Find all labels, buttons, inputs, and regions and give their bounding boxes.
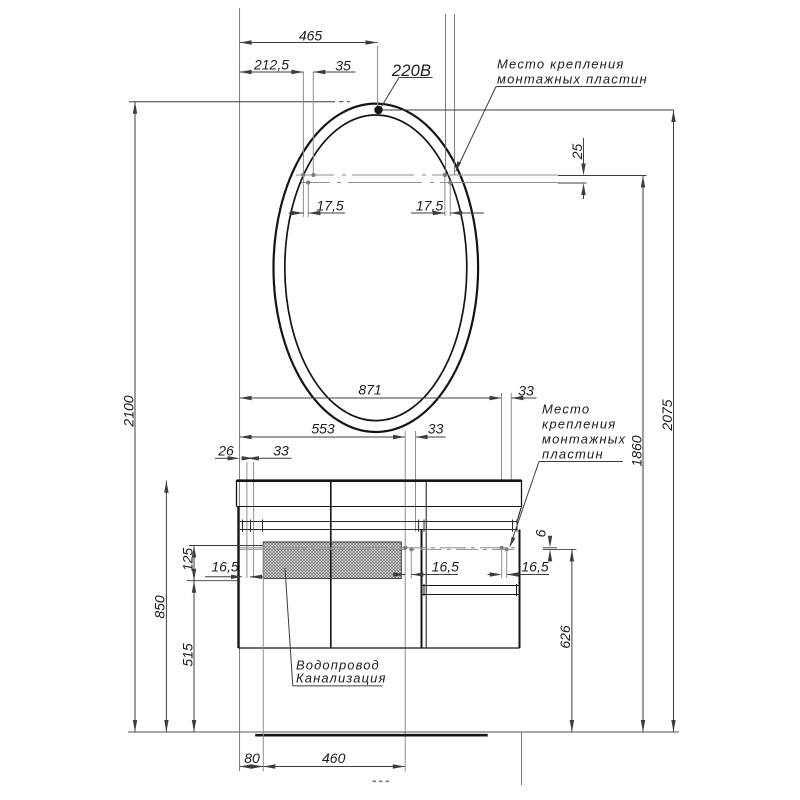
svg-text:626: 626	[557, 625, 573, 649]
svg-text:17,5: 17,5	[416, 197, 443, 213]
svg-text:33: 33	[273, 443, 289, 459]
svg-text:16,5: 16,5	[432, 559, 459, 575]
svg-text:16,5: 16,5	[521, 558, 548, 574]
svg-text:553: 553	[311, 420, 335, 436]
svg-text:35: 35	[335, 57, 351, 73]
svg-text:монтажных: монтажных	[542, 432, 626, 447]
svg-text:6: 6	[533, 529, 549, 537]
svg-text:Канализация: Канализация	[296, 670, 387, 685]
svg-text:460: 460	[322, 750, 346, 766]
svg-text:17,5: 17,5	[316, 197, 343, 213]
svg-text:33: 33	[428, 420, 444, 436]
svg-text:1860: 1860	[628, 435, 644, 466]
svg-text:25: 25	[569, 144, 585, 161]
svg-text:33: 33	[518, 382, 534, 398]
svg-text:16,5: 16,5	[211, 558, 238, 574]
svg-text:2075: 2075	[659, 399, 675, 431]
svg-text:Место крепления: Место крепления	[497, 57, 625, 72]
svg-text:Место: Место	[542, 402, 590, 417]
svg-text:212,5: 212,5	[253, 57, 289, 73]
svg-text:крепления: крепления	[542, 417, 616, 432]
svg-text:871: 871	[358, 381, 381, 397]
svg-text:80: 80	[244, 750, 260, 766]
svg-text:26: 26	[217, 443, 234, 459]
svg-text:515: 515	[179, 643, 195, 667]
svg-text:850: 850	[152, 595, 168, 619]
svg-text:2100: 2100	[120, 395, 136, 427]
svg-text:пластин: пластин	[542, 447, 604, 462]
svg-text:125: 125	[179, 548, 195, 572]
svg-text:465: 465	[299, 28, 323, 44]
svg-text:монтажных пластин: монтажных пластин	[497, 72, 648, 87]
